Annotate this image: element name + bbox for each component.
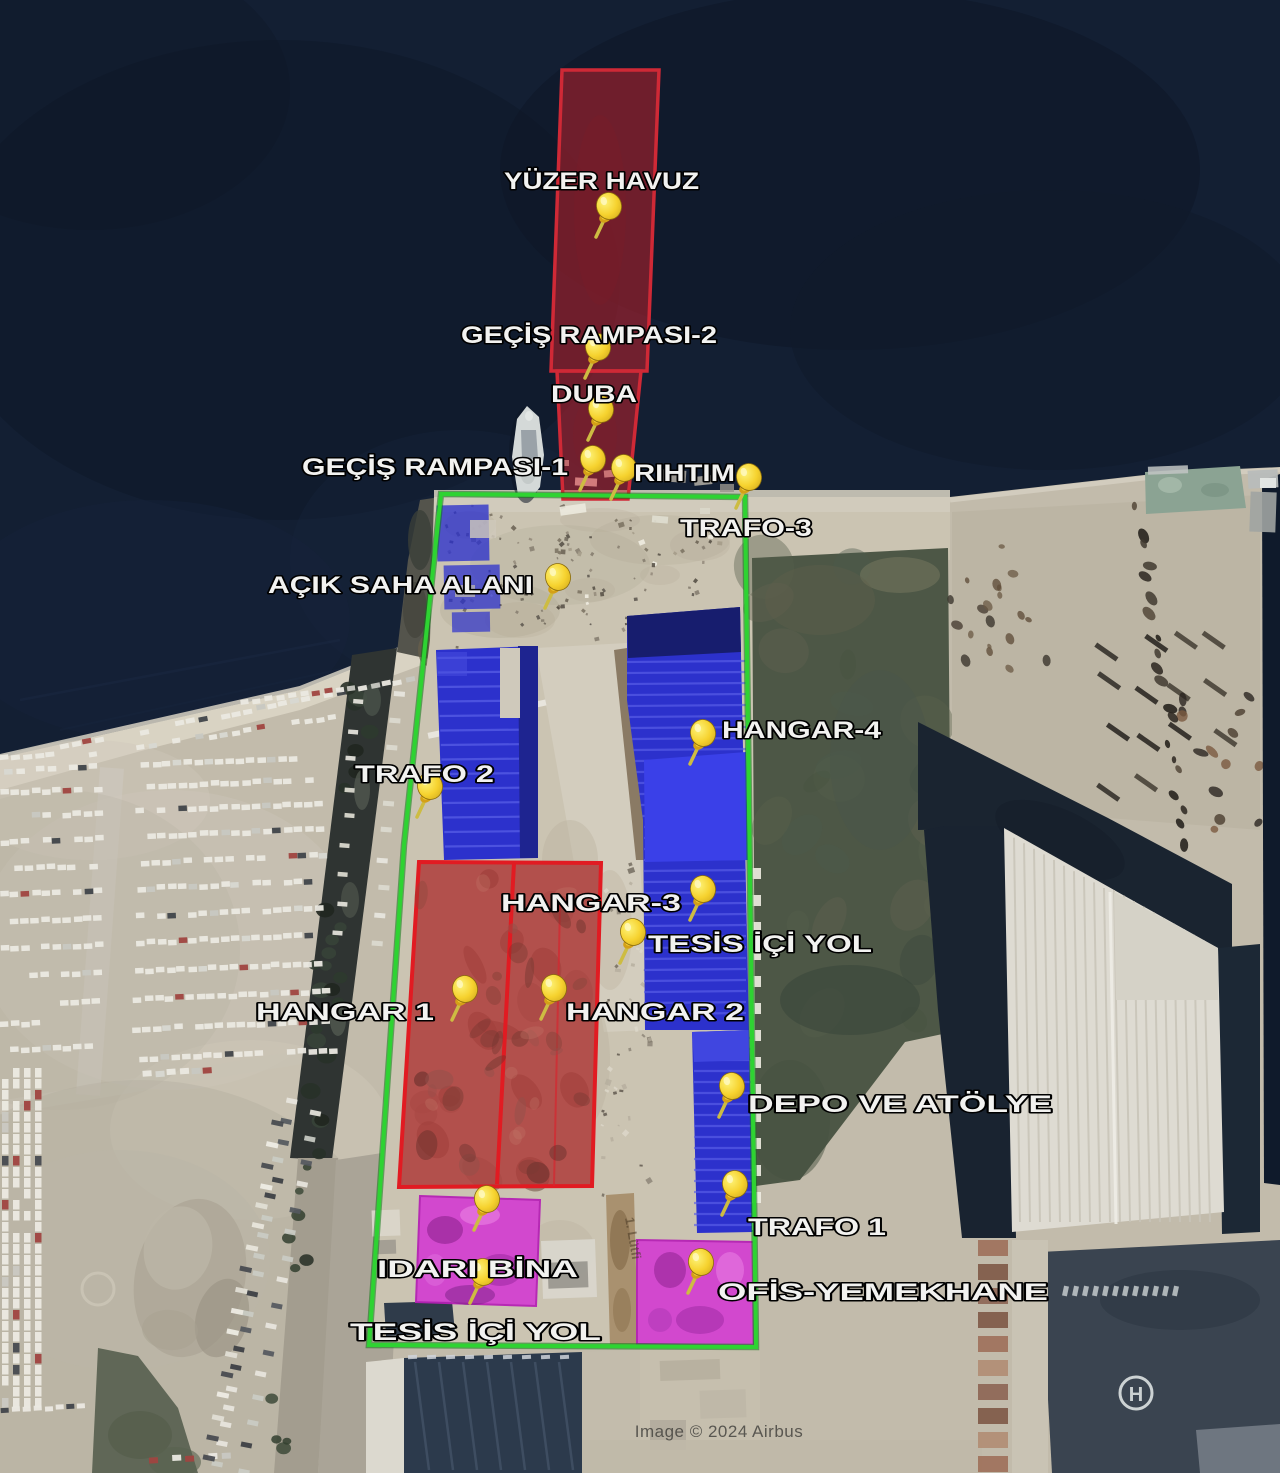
svg-text:GEÇİŞ RAMPASI-2: GEÇİŞ RAMPASI-2 — [461, 322, 717, 349]
svg-text:AÇIK SAHA ALANI: AÇIK SAHA ALANI — [268, 572, 533, 599]
svg-text:HANGAR-4: HANGAR-4 — [722, 717, 882, 744]
svg-text:TESİS İÇİ YOL: TESİS İÇİ YOL — [648, 931, 872, 958]
svg-text:TRAFO 1: TRAFO 1 — [748, 1214, 886, 1241]
svg-text:HANGAR 1: HANGAR 1 — [256, 999, 434, 1026]
svg-text:TRAFO-3: TRAFO-3 — [680, 515, 812, 542]
svg-text:TESİS İÇİ YOL: TESİS İÇİ YOL — [350, 1319, 601, 1346]
svg-text:TRAFO 2: TRAFO 2 — [355, 761, 494, 788]
svg-text:RIHTIM: RIHTIM — [634, 460, 735, 487]
svg-text:DUBA: DUBA — [551, 381, 637, 408]
svg-text:GEÇİŞ RAMPASI-1: GEÇİŞ RAMPASI-1 — [302, 454, 568, 481]
svg-text:YÜZER HAVUZ: YÜZER HAVUZ — [504, 168, 699, 195]
svg-text:HANGAR-3: HANGAR-3 — [501, 890, 681, 917]
svg-text:OFİS-YEMEKHANE: OFİS-YEMEKHANE — [718, 1279, 1048, 1306]
svg-text:Image © 2024 Airbus: Image © 2024 Airbus — [635, 1422, 804, 1441]
svg-text:IDARI BİNA: IDARI BİNA — [377, 1256, 578, 1283]
svg-text:DEPO VE ATÖLYE: DEPO VE ATÖLYE — [748, 1091, 1052, 1118]
svg-text:HANGAR 2: HANGAR 2 — [566, 999, 744, 1026]
svg-text:H: H — [1129, 1384, 1143, 1406]
